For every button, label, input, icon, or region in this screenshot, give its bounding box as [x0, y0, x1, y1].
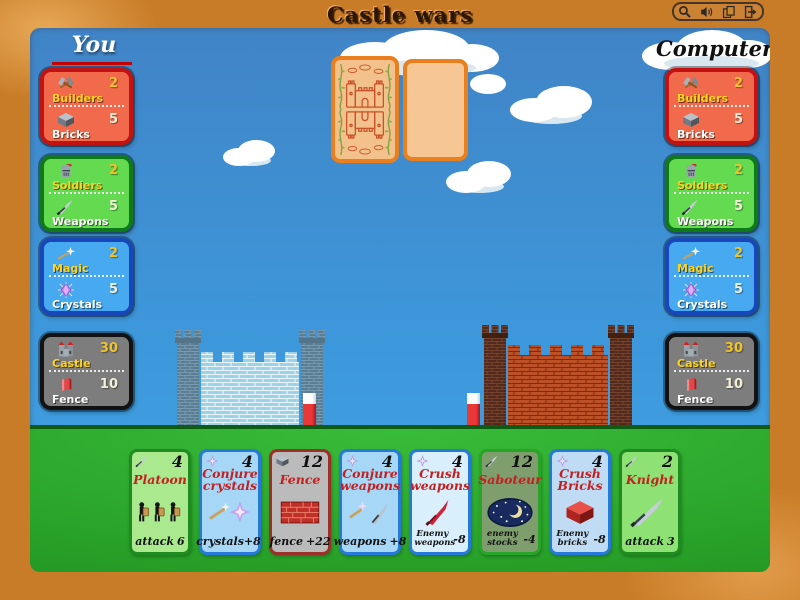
stat-value: 5	[734, 112, 743, 127]
divider	[49, 105, 124, 107]
panel-computer-builders: 2 Builders 5 Bricks	[665, 68, 758, 145]
stat-value: 10	[100, 377, 118, 392]
hand-card-platoon[interactable]: 4 Platoon attack 6	[129, 449, 191, 555]
stat-label: Fence	[44, 393, 129, 406]
divider	[49, 370, 124, 372]
stat-value: 2	[109, 163, 118, 178]
cards-icon[interactable]	[722, 5, 736, 19]
effect-text: Enemy bricks	[554, 530, 590, 548]
card-cost: 4	[592, 452, 603, 471]
player-fence-post	[303, 393, 316, 425]
card-effect: Enemy bricks -8	[552, 530, 608, 548]
hand-card-saboteur[interactable]: 12 Saboteur enemy stocks -4	[479, 449, 541, 555]
you-underline	[52, 62, 132, 65]
sparkle-icon	[345, 455, 360, 467]
divider	[674, 370, 749, 372]
soldier-helmet-icon	[56, 163, 76, 179]
panel-computer-castle: 30 Castle 10 Fence	[665, 333, 758, 410]
cloud	[446, 161, 512, 195]
stat-value: 30	[100, 341, 118, 356]
builders-icon	[681, 76, 701, 92]
hand-card-crush-bricks[interactable]: 4 Crush Bricks Enemy bricks -8	[549, 449, 611, 555]
stat-value: 2	[109, 246, 118, 261]
sparkle-icon	[205, 455, 220, 467]
card-effect: enemy stocks -4	[482, 530, 538, 548]
card-cost: 4	[172, 452, 183, 471]
stat-label: Crystals	[669, 298, 754, 311]
stat-label: Weapons	[669, 215, 754, 228]
effect-text: attack	[625, 535, 664, 548]
hand-card-crush-weapons[interactable]: 4 Crush weapons Enemy weapons -8	[409, 449, 471, 555]
stat-value: 2	[734, 163, 743, 178]
sword-icon	[135, 455, 150, 467]
sparkle-icon	[415, 455, 430, 467]
soldier-helmet-icon	[681, 163, 701, 179]
stat-value: 5	[734, 282, 743, 297]
card-art-night-moon	[482, 495, 538, 529]
stat-value: 5	[109, 199, 118, 214]
effect-value: -4	[523, 533, 535, 546]
sword-icon	[681, 199, 701, 215]
card-effect: weapons +8	[342, 535, 398, 548]
card-art-red-sword	[412, 495, 468, 529]
crystal-icon	[681, 282, 701, 298]
stat-value: 5	[109, 282, 118, 297]
card-effect: attack 6	[132, 535, 188, 548]
computer-castle	[482, 323, 634, 425]
stat-value: 2	[734, 246, 743, 261]
divider	[49, 192, 124, 194]
card-cost: 12	[511, 452, 533, 471]
card-effect: Enemy weapons -8	[412, 530, 468, 548]
card-cost: 4	[382, 452, 393, 471]
effect-text: Enemy weapons	[414, 530, 450, 548]
fence-brick-icon	[681, 377, 701, 393]
panel-you-soldiers: 2 Soldiers 5 Weapons	[40, 155, 133, 232]
effect-value: 6	[177, 535, 185, 548]
magic-wand-icon	[681, 246, 701, 262]
panel-you-magic: 2 Magic 5 Crystals	[40, 238, 133, 315]
stat-value: 2	[734, 76, 743, 91]
stat-value: 2	[109, 76, 118, 91]
effect-value: -8	[593, 533, 605, 546]
cloud	[223, 140, 277, 168]
castle-wars-window: { "window": { "title": "Castle wars", "t…	[0, 0, 800, 600]
stat-label: Bricks	[669, 128, 754, 141]
effect-value: 3	[667, 535, 675, 548]
effect-text: crystals+8	[196, 535, 261, 548]
stat-value: 10	[725, 377, 743, 392]
hand-card-fence[interactable]: 12 Fence fence +22	[269, 449, 331, 555]
card-back-art-icon	[337, 62, 393, 157]
effect-text: fence	[270, 535, 303, 548]
card-effect: attack 3	[622, 535, 678, 548]
magic-wand-icon	[56, 246, 76, 262]
card-effect: crystals+8	[202, 535, 258, 548]
stat-label: Bricks	[44, 128, 129, 141]
sword-icon	[625, 455, 640, 467]
toolbar	[672, 2, 764, 21]
magnifier-icon[interactable]	[678, 5, 692, 19]
card-art-wand-and-crystal	[202, 495, 258, 529]
title-bar: Castle wars	[0, 0, 800, 28]
hand-card-knight[interactable]: 2 Knight attack 3	[619, 449, 681, 555]
stat-label: Castle	[669, 357, 754, 370]
crystal-icon	[56, 282, 76, 298]
exit-icon[interactable]	[744, 5, 758, 19]
effect-value: +8	[389, 535, 406, 548]
fence-brick-icon	[56, 377, 76, 393]
card-cost: 2	[662, 452, 673, 471]
cloud	[510, 86, 594, 128]
stat-label: Fence	[669, 393, 754, 406]
game-area: You Computer 2 Builders 5 Bricks 2 Soldi	[30, 28, 770, 572]
castle-icon	[681, 341, 701, 357]
player-label-you: You	[44, 32, 144, 58]
card-cost: 4	[242, 452, 253, 471]
stat-label: Builders	[44, 92, 129, 105]
effect-text: enemy stocks	[484, 530, 520, 548]
panel-computer-magic: 2 Magic 5 Crystals	[665, 238, 758, 315]
bricks-icon	[56, 112, 76, 128]
draw-pile-card-back[interactable]	[331, 56, 399, 163]
sparkle-icon	[555, 455, 570, 467]
divider	[674, 192, 749, 194]
stat-label: Magic	[669, 262, 754, 275]
panel-you-builders: 2 Builders 5 Bricks	[40, 68, 133, 145]
sound-icon[interactable]	[700, 5, 714, 19]
card-cost: 4	[452, 452, 463, 471]
panel-you-castle: 30 Castle 10 Fence	[40, 333, 133, 410]
effect-text: attack	[135, 535, 174, 548]
stat-label: Weapons	[44, 215, 129, 228]
stat-value: 5	[109, 112, 118, 127]
card-art-three-soldiers	[132, 495, 188, 529]
stat-value: 30	[725, 341, 743, 356]
card-art-red-brick	[552, 495, 608, 529]
panel-computer-soldiers: 2 Soldiers 5 Weapons	[665, 155, 758, 232]
bricks-icon	[275, 455, 290, 467]
hand-card-conjure-crystals[interactable]: 4 Conjure crystals crystals+8	[199, 449, 261, 555]
sword-icon	[56, 199, 76, 215]
stat-label: Magic	[44, 262, 129, 275]
stat-label: Castle	[44, 357, 129, 370]
discard-slot	[403, 59, 468, 161]
stat-label: Crystals	[44, 298, 129, 311]
player-label-computer: Computer	[656, 36, 770, 61]
stat-label: Soldiers	[669, 179, 754, 192]
card-effect: fence +22	[272, 535, 328, 548]
stat-label: Soldiers	[44, 179, 129, 192]
effect-value: -8	[453, 533, 465, 546]
card-art-brick-wall	[272, 495, 328, 529]
computer-fence-post	[467, 393, 480, 425]
card-cost: 12	[301, 452, 323, 471]
effect-text: weapons	[334, 535, 387, 548]
hand-card-conjure-weapons[interactable]: 4 Conjure weapons weapons +8	[339, 449, 401, 555]
card-art-wand-and-sword	[342, 495, 398, 529]
sword-icon	[485, 455, 500, 467]
divider	[49, 275, 124, 277]
divider	[674, 105, 749, 107]
stat-value: 5	[734, 199, 743, 214]
divider	[674, 275, 749, 277]
stat-label: Builders	[669, 92, 754, 105]
effect-value: +22	[306, 535, 331, 548]
builders-icon	[56, 76, 76, 92]
castle-icon	[56, 341, 76, 357]
card-art-sword	[622, 495, 678, 529]
bricks-icon	[681, 112, 701, 128]
